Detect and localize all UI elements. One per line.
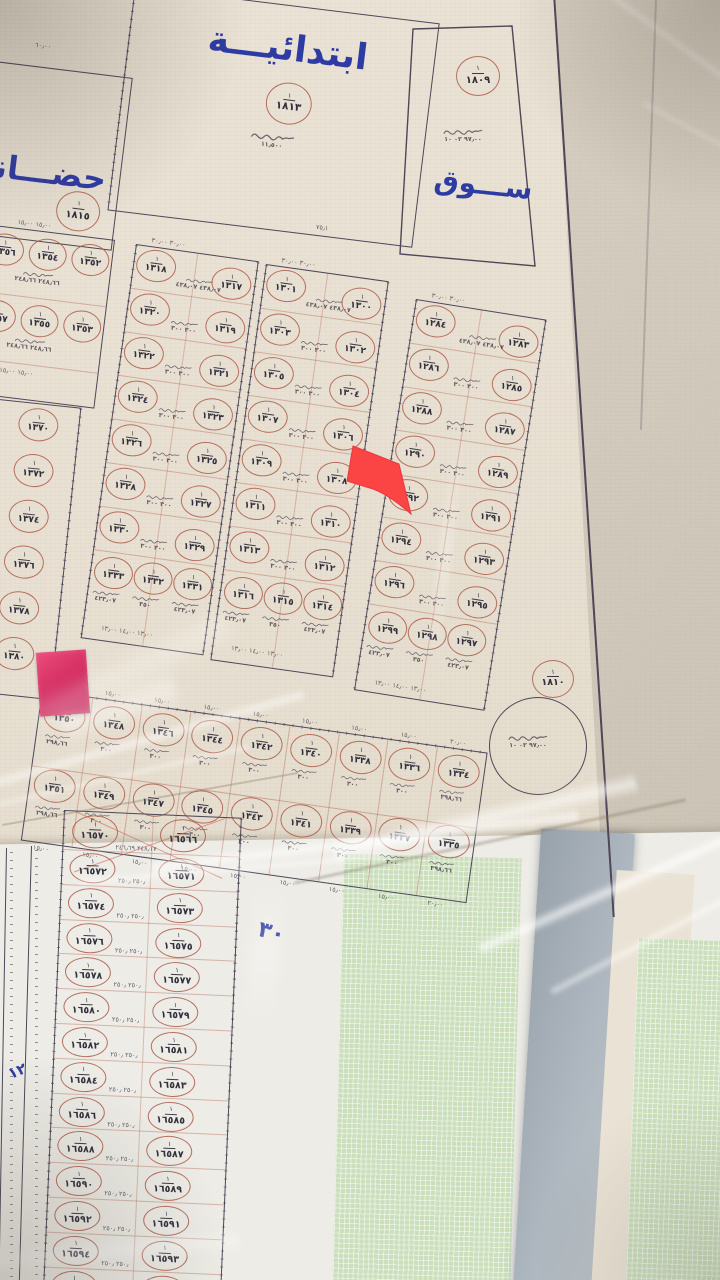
plot-number: ١٦٥٩٢ bbox=[62, 1213, 92, 1227]
plot-circle: ١١٦٥٨٠ bbox=[63, 991, 110, 1023]
area-note: ٤٢٣٫٠٧ bbox=[221, 608, 251, 626]
plot-block-lower: ١١٦٥٧٠١١٦٥٦٦٢٤٨٫١٧ ٢٤٦٫٦٩١١٦٥٧٢١١٦٥٧١٢٥٠… bbox=[43, 810, 242, 1280]
area-note: ٣٠٠ ٣٠٠ bbox=[287, 426, 317, 444]
plot-number: ١٨١٣ bbox=[275, 99, 302, 116]
plot-number: ١٢٨٤ bbox=[423, 318, 447, 333]
plot-number: ١٣٠٩ bbox=[249, 457, 272, 472]
plot-circle: ١١٢٨٥ bbox=[489, 366, 534, 404]
area-note: ٤٢٣٫٠٧ bbox=[443, 655, 473, 673]
plot-circle: ١١٣٠١ bbox=[264, 267, 308, 304]
dimension-label: ١٥٫٠٠ ١٥٫٠٠ bbox=[0, 366, 34, 378]
plot-number: ١٦٥٨٨ bbox=[65, 1144, 95, 1158]
area-note: ٢٤٨٫٦٦ ٢٤٨٫٦٦ bbox=[6, 335, 53, 354]
dimension-label: ٢٥٠٫ ٢٥٠٫ bbox=[104, 1189, 132, 1198]
plot-number: ١٢٨٩ bbox=[486, 469, 510, 484]
plot-circle: ١١٢٨٧ bbox=[483, 410, 528, 448]
area-note: ٣٠٠ bbox=[388, 780, 416, 797]
plot-circle: ١١٣١٥ bbox=[262, 580, 305, 617]
plot-number: ١٣٣٢ bbox=[141, 576, 164, 591]
plot-circle: ١١٢٩٤ bbox=[379, 520, 424, 558]
note-value: ٤٢٣٫٠٧ bbox=[303, 627, 325, 637]
note-value: ٤٢٣٫٠٧ bbox=[368, 650, 390, 660]
plot-circle: ١١٣٣٦ bbox=[387, 745, 433, 784]
area-note: ٣٠٠ ٣٠٠ bbox=[138, 536, 168, 554]
note-value: ٣٥٠ bbox=[412, 657, 424, 666]
plot-circle: ١١٣٢٣ bbox=[191, 396, 235, 433]
area-note: ٣٠٠ ٣٠٠ bbox=[451, 375, 481, 393]
plot-number: ١٦٥٧٦ bbox=[75, 935, 105, 949]
note-value: ٤٣٨٫٠٧ ٤٣٨٫٠٧ bbox=[175, 282, 221, 295]
dimension-label: ٦٠٫٠٠ bbox=[35, 41, 52, 51]
note-value: ٣٠٠ ٣٠٠ bbox=[270, 564, 296, 574]
plot-circle: ١١٦٥٩٤ bbox=[52, 1235, 99, 1267]
plot-block-A1: ١٥٫٠٠ ١٥٫٠٠١١٣٥٦١١٣٥٤١١٣٥٢٢٤٨٫٦٦ ٢٤٨٫٦٦١… bbox=[0, 224, 115, 409]
plot-number: ١٢٩٩ bbox=[375, 624, 399, 639]
area-note: ٣٠٠ ٣٠٠ bbox=[163, 362, 193, 380]
plot-number: ١٦٥٦٦ bbox=[168, 833, 198, 847]
plot-circle: ١١٣٤٤ bbox=[189, 717, 235, 756]
plot-circle: ١١٣١١ bbox=[233, 485, 277, 522]
area-note: ٣٠٠ ٣٠٠ bbox=[169, 319, 199, 337]
plot-number: ١٣٤٧ bbox=[141, 797, 164, 812]
area-note: ٣٠٠ ٣٠٠ bbox=[268, 556, 298, 574]
plot-number: ١٢٩٤ bbox=[389, 535, 413, 550]
note-value: ٤٢٣٫٠٧ bbox=[224, 616, 246, 626]
plot-number: ١٣٠٤ bbox=[337, 388, 360, 403]
area-note: ٣٠٠ bbox=[93, 739, 121, 756]
red-arrow-marker bbox=[343, 442, 417, 520]
plot-number: ١٣٣٧ bbox=[387, 832, 410, 847]
green-zone-center bbox=[332, 854, 521, 1280]
dimension-label: ١٣٫٠٠ ١٤٫٠٠ ١٣٫٠٠ bbox=[101, 624, 154, 639]
roundabout-circle: ٩٧٫٠٠ ٠٢ ١٠ bbox=[489, 697, 587, 795]
plot-number: ١٦٥٩٣ bbox=[150, 1253, 180, 1267]
plot-number: ١٦٥٧٣ bbox=[165, 905, 195, 919]
plot-circle: ١١٣٧٤ bbox=[7, 498, 50, 535]
plot-number: ١٢٨٧ bbox=[492, 425, 516, 440]
plot-number: ١٣٤٨ bbox=[102, 720, 125, 735]
note-value: ٣٠٠ ٣٠٠ bbox=[300, 346, 326, 356]
note-value: ١١٫٥٠٠ bbox=[260, 142, 282, 151]
note-value: ٣٠٠ ٣٠٠ bbox=[446, 425, 472, 436]
note-value: ٤٣٨٫٠٧ ٤٣٨٫٠٧ bbox=[458, 338, 504, 352]
plot-number: ١٢٩١ bbox=[479, 512, 503, 527]
plot-numerator: ١ bbox=[0, 305, 4, 315]
plot-circle: ١١٣٢٨ bbox=[103, 465, 147, 502]
plot-number: ١٢٨٨ bbox=[410, 405, 434, 420]
plot-circle: ١١٣٢٥ bbox=[185, 439, 229, 476]
dimension-label: ٢٥٠٫ ٢٥٠٫ bbox=[101, 1259, 129, 1268]
dimension-label: ١٣٫٠٠ ١٤٫٠٠ ١٣٫٠٠ bbox=[231, 644, 284, 659]
dimension-label: ٢٥٠٫ ٢٥٠٫ bbox=[118, 876, 146, 885]
note-value: ٣٠٠ bbox=[346, 781, 358, 789]
plot-circle: ١١٦٥٩١ bbox=[143, 1205, 190, 1237]
note-value: ٣٠٠ ٣٠٠ bbox=[288, 433, 314, 443]
plot-number: ١٣٢٣ bbox=[201, 411, 224, 426]
plot-number: ١٢٨٥ bbox=[499, 382, 523, 397]
plot-number: ١٨٠٩ bbox=[466, 74, 490, 87]
plot-circle: ١١٣٠٥ bbox=[252, 355, 296, 392]
plot-number: ١٣٥٣ bbox=[70, 324, 93, 338]
plot-number: ١٣٢١ bbox=[207, 368, 230, 383]
plot-number: ١٣٤٦ bbox=[151, 727, 174, 742]
plot-circle: ١١٣٢٩ bbox=[173, 526, 217, 563]
plot-number: ١٣٤١ bbox=[289, 818, 312, 833]
plot-number: ١٣٤٢ bbox=[249, 741, 272, 756]
plot-circle: ١١٣١٢ bbox=[303, 546, 347, 583]
plot-number: ١٦٥٨٧ bbox=[154, 1149, 184, 1163]
plot-number: ١٦٥٧٢ bbox=[78, 866, 108, 880]
area-note: ٢٩٨٫٦٦ bbox=[33, 803, 61, 820]
plot-number: ١٣٧٤ bbox=[17, 514, 40, 528]
area-note: ٤٢٣٫٠٧ bbox=[364, 643, 394, 661]
dimension-label: ٢٥٠٫ ٢٥٠٫ bbox=[107, 1120, 135, 1129]
plot-number: ١٢٩٧ bbox=[454, 637, 478, 652]
note-value: ٣٠٠ ٣٠٠ bbox=[453, 382, 479, 393]
note-value: ٣٠٠ ٣٠٠ bbox=[276, 520, 302, 530]
plot-circle: ١١٦٥٧٢ bbox=[69, 852, 116, 884]
plot-circle: ١١٦٥٧٥ bbox=[155, 927, 202, 959]
plot-number: ١٦٥٧٥ bbox=[163, 940, 193, 954]
market-block: ١ ١٨٠٩ ٩٧٫٠٠ ٠٢ ١٠ ســـوق bbox=[392, 16, 538, 272]
plot-circle: ١١٣٠٩ bbox=[240, 442, 284, 479]
plot-number: ١٣٢٩ bbox=[182, 542, 205, 557]
plot-circle: ١١٦٥٨٩ bbox=[144, 1170, 191, 1202]
plot-circle: ١١٦٥٧٦ bbox=[66, 922, 113, 954]
note-value: ٣٠٠ ٣٠٠ bbox=[152, 456, 178, 466]
plot-circle: ١١٦٥٨١ bbox=[150, 1031, 197, 1063]
plot-number: ١٦٥٧٠ bbox=[80, 829, 110, 843]
dimension-label: ٢٥٠٫ ٢٥٠٫ bbox=[112, 1015, 140, 1024]
plot-number: ١٣٤٠ bbox=[299, 747, 322, 762]
plot-circle: ١١٢٩٧ bbox=[445, 621, 489, 659]
plot-circle: ١١٣١٩ bbox=[203, 309, 247, 346]
plot-circle: ١١٣٨٠ bbox=[0, 635, 36, 672]
area-note: ٤٣٨٫٠٧ ٤٣٨٫٠٧ bbox=[458, 331, 505, 352]
dimension-label: ٢٥٠٫ ٢٥٠٫ bbox=[103, 1224, 131, 1233]
plot-number: ١٨١٥ bbox=[65, 208, 91, 224]
plot-circle: ١١٢٩١ bbox=[469, 496, 514, 534]
plot-circle: ١١٣٣٨ bbox=[337, 738, 383, 777]
area-note: ٤٢٣٫٠٧ bbox=[170, 599, 200, 617]
area-note: ٣٠٠ ٣٠٠ bbox=[424, 549, 454, 567]
note-value: ٣٠٠ ٣٠٠ bbox=[170, 326, 196, 336]
plot-number: ١٦٥٧١ bbox=[166, 871, 196, 885]
dimension-label: ٢٥٠٫ ٢٥٠٫ bbox=[115, 946, 143, 955]
note-value: ٣٠٠ ٣٠٠ bbox=[164, 369, 190, 379]
plot-circle: ١١٣٧٢ bbox=[12, 452, 55, 489]
plot-circle: ١١٢٨٩ bbox=[476, 453, 521, 491]
plot-circle: ١١٣٧٠ bbox=[17, 406, 60, 443]
plot-circle: ١١٣٠٣ bbox=[258, 311, 302, 348]
plot-number: ١٣٧٠ bbox=[26, 422, 49, 436]
plot-circle: ١١٣٢١ bbox=[197, 352, 241, 389]
plot-circle: ١١٣١٨ bbox=[134, 247, 178, 284]
plot-circle: ١١٣٤١ bbox=[278, 802, 324, 841]
dimension-label: ٢٥٠٫ ٢٥٠٫ bbox=[116, 911, 144, 920]
plot-circle: ١١٣٥٦ bbox=[0, 231, 26, 267]
plot-circle: ١١٢٩٦ bbox=[372, 563, 417, 601]
area-note: ٣٠٠ ٣٠٠ bbox=[417, 592, 447, 610]
plot-number: ١٦٥٨٥ bbox=[156, 1114, 186, 1128]
plot-number: ١٣٥٤ bbox=[36, 252, 59, 266]
plot-circle: ١١٣٤٠ bbox=[288, 731, 334, 770]
school-label: ابتدائيـــة bbox=[206, 18, 370, 78]
note-value: ٣٠٠ bbox=[297, 774, 309, 782]
plot-number: ١٣٣٤ bbox=[447, 768, 470, 783]
area-note: ٣٠٠ ٣٠٠ bbox=[438, 462, 468, 480]
block-bottom-row: ١١٢٩٩٤٢٣٫٠٧١١٢٩٨٣٥٠١١٢٩٧٤٢٣٫٠٧١٣٫٠٠ ١٤٫٠… bbox=[355, 604, 497, 713]
plot-number: ١٣٥٥ bbox=[27, 318, 50, 332]
plot-number: ١٢٨٦ bbox=[416, 362, 440, 377]
note-value: ٤٣٨٫٠٧ ٤٣٨٫٠٧ bbox=[305, 302, 351, 315]
area-note: ٣٥٠ bbox=[260, 614, 290, 632]
plot-circle: ١١٣٥٧ bbox=[0, 298, 18, 334]
facility-plot-circle: ١ ١٨١٣ bbox=[263, 80, 314, 127]
plot-number: ١٣١٦ bbox=[231, 590, 254, 605]
nursery-label: حضـــانة bbox=[0, 145, 108, 199]
plot-number: ١٢٩٣ bbox=[472, 556, 496, 571]
block-bottom-row: ١١٣٣٣٤٢٣٫٠٧١١٣٣٢٣٥٠١١٣٣١٤٢٣٫٠٧١٣٫٠٠ ١٤٫٠… bbox=[81, 550, 214, 656]
plot-number: ١٦٥٨٠ bbox=[71, 1005, 101, 1019]
area-note: ٣٥٠ bbox=[404, 649, 434, 667]
plot-circle: ١١٦٥٨٦ bbox=[58, 1096, 105, 1128]
dimension-label: ٢٥٠٫ ٢٥٠٫ bbox=[109, 1085, 137, 1094]
plot-circle: ١١٦٥٩٦ bbox=[51, 1269, 98, 1280]
plot-number: ١٣١١ bbox=[243, 501, 266, 516]
area-note: ٣٠٠ ٣٠٠ bbox=[275, 513, 305, 531]
note-value: ٣٠٠ bbox=[248, 768, 260, 776]
note-value: ٤٢٣٫٠٧ bbox=[94, 596, 116, 606]
plot-circle: ١١٣٢٤ bbox=[116, 378, 160, 415]
plot-number: ١٣٠١ bbox=[274, 283, 297, 298]
plot-number: ١٣١٧ bbox=[219, 281, 242, 296]
note-value: ٢٩٨٫٦٦ bbox=[45, 739, 67, 749]
area-note: ٣٠٠ ٣٠٠ bbox=[157, 406, 187, 424]
plot-circle: ١١٦٥٩٢ bbox=[54, 1200, 101, 1232]
note-value: ٩٧٫٠٠ ٠٢ ١٠ bbox=[444, 137, 482, 144]
note-value: ٣٠٠ bbox=[100, 747, 112, 755]
plot-circle: ١١٣٣٩ bbox=[327, 809, 373, 848]
plot-number: ١٢٩٥ bbox=[465, 599, 489, 614]
map-photo: حضـــانة ١ ١٨١٥ ٦٠٫٠٠ ابتدائيـــة ١ ١٨١٣… bbox=[0, 0, 720, 1280]
note-value: ٣٠٠ bbox=[336, 853, 348, 861]
plot-circle: ١١٣٣٤ bbox=[436, 752, 482, 791]
plot-circle: ١١٦٥٧٧ bbox=[153, 961, 200, 993]
area-note: ٣٠٠ bbox=[329, 845, 357, 862]
note-value: ٣٠٠ ٣٠٠ bbox=[425, 556, 451, 567]
note-value: ٣٠٠ ٣٠٠ bbox=[282, 476, 308, 486]
plot-circle: ١١٦٥٨٢ bbox=[61, 1026, 108, 1058]
plot-number: ١٦٥٨٤ bbox=[68, 1074, 98, 1088]
plot-circle: ١١٦٥٩٥ bbox=[140, 1274, 187, 1280]
note-value: ٣٠٠ ٣٠٠ bbox=[439, 469, 465, 480]
plot-number: ١٦٥٧٩ bbox=[160, 1010, 190, 1024]
plot-circle: ١١٢٨٦ bbox=[407, 346, 452, 384]
green-zone-right bbox=[626, 938, 720, 1280]
plot-number: ١٣١٣ bbox=[237, 544, 260, 559]
plot-number: ١٦٥٩٤ bbox=[61, 1248, 91, 1262]
plot-circle: ١١٣٣٠ bbox=[97, 509, 141, 546]
plot-number: ١٣٠٥ bbox=[262, 370, 285, 385]
plot-circle: ١١٣٣٣ bbox=[92, 555, 135, 592]
area-note: ٣٠٠ bbox=[290, 766, 318, 783]
area-note: ٣٠٠ bbox=[339, 773, 367, 790]
area-note: ٣٩٨٫٦٦ bbox=[428, 859, 456, 876]
plot-circle: ١١٣٤٢ bbox=[239, 724, 285, 763]
plot-circle: ١١٦٥٨٧ bbox=[146, 1135, 193, 1167]
plot-number: ١٣٨٠ bbox=[2, 651, 25, 665]
area-note: ٣٠٠ ٣٠٠ bbox=[145, 493, 175, 511]
plot-number: ١٣١٥ bbox=[271, 596, 294, 611]
plot-circle: ١١٣٣٥ bbox=[426, 822, 472, 861]
plot-number: ١٣٥٦ bbox=[0, 247, 16, 261]
plot-number: ١٣٢٤ bbox=[125, 394, 148, 409]
plot-number: ١٣٢٦ bbox=[119, 437, 142, 452]
plot-circle: ١١٣٥٤ bbox=[27, 237, 69, 273]
block-bottom-row: ١١٣١٦٤٢٣٫٠٧١١٣١٥٣٥٠١١٣١٤٤٢٣٫٠٧١٣٫٠٠ ١٤٫٠… bbox=[211, 570, 344, 676]
note-value: ٢٩٨٫٦٦ bbox=[35, 810, 57, 820]
market-outline bbox=[392, 16, 538, 272]
note-value: ٣٠٠ ٣٠٠ bbox=[294, 389, 320, 399]
plot-circle: ١١٦٥٨٤ bbox=[60, 1061, 107, 1093]
area-note: ٢٤٨٫٦٦ bbox=[0, 434, 1, 451]
plot-number: ١٣٥١ bbox=[42, 783, 65, 798]
plot-circle: ١١٣٥٣ bbox=[61, 308, 103, 344]
plot-number: ١٣٣٨ bbox=[348, 754, 371, 769]
plot-circle: ١١٣٣٧ bbox=[377, 815, 423, 854]
plot-number: ١٣٥٢ bbox=[78, 257, 101, 271]
plot-circle: ١١٣١٦ bbox=[222, 575, 265, 612]
plot-number: ١٣٣٥ bbox=[437, 839, 460, 854]
note-value: ٣٥٠ bbox=[268, 622, 280, 630]
plot-number: ١٦٥٩١ bbox=[151, 1218, 181, 1232]
plot-circle: ١١٦٥٩٣ bbox=[141, 1240, 188, 1272]
plot-circle: ١١٢٩٩ bbox=[366, 609, 410, 647]
area-note: ٣٠٠ ٣٠٠ bbox=[151, 449, 181, 467]
plot-circle: ١١٣٧٦ bbox=[2, 544, 45, 581]
plot-circle: ١١٦٥٨٨ bbox=[57, 1130, 104, 1162]
area-note: ٢٩٨٫٦٦ bbox=[43, 732, 71, 749]
plot-circle: ١١٣٥٢ bbox=[70, 242, 112, 278]
plot-number: ١٣٠٣ bbox=[268, 326, 291, 341]
area-note: ٤٢٣٫٠٧ bbox=[91, 588, 121, 606]
plot-number: ١٦٥٨١ bbox=[159, 1044, 189, 1058]
plot-number: ١٣١٩ bbox=[213, 324, 236, 339]
plot-circle: ١١٣٠٤ bbox=[327, 372, 371, 409]
plot-number: ١٦٥٨٩ bbox=[153, 1184, 183, 1198]
plot-number: ١٣١٨ bbox=[144, 263, 167, 278]
plot-number: ١٣١٠ bbox=[318, 518, 341, 533]
plot-circle: ١١٣١٤ bbox=[301, 586, 344, 623]
plot-circle: ١١٢٩٣ bbox=[462, 540, 507, 578]
plot-circle: ١١٦٥٦٦ bbox=[159, 818, 206, 853]
plot-number: ١٣٢٠ bbox=[138, 306, 161, 321]
plot-circle: ١١٣٢٧ bbox=[179, 483, 223, 520]
area-note: ٣٠٠ bbox=[280, 838, 308, 855]
plot-circle: ١١٢٨٨ bbox=[400, 389, 445, 427]
plot-circle: ١١٦٥٧٩ bbox=[152, 996, 199, 1028]
plot-number: ١٣٣٦ bbox=[397, 761, 420, 776]
note-value: ٤٢٣٫٠٧ bbox=[173, 607, 195, 617]
area-note: ٣٠٠ ٣٠٠ bbox=[281, 469, 311, 487]
plot-circle: ١١٦٥٨٣ bbox=[149, 1066, 196, 1098]
plot-number: ١٣٤٤ bbox=[200, 734, 223, 749]
plot-circle: ١١٣٤٩ bbox=[81, 774, 127, 813]
area-note: ٣٠٠ ٣٠٠ bbox=[299, 339, 329, 357]
plot-numerator: ١ bbox=[472, 65, 484, 74]
plot-number: ١٦٥٧٧ bbox=[162, 975, 192, 989]
dimension-label: ٧٥٫١ bbox=[316, 223, 329, 232]
handwritten-note: ٩٧٫٠٠ ٠٢ ١٠ bbox=[504, 734, 552, 750]
plot-number: ١٦٥٨٢ bbox=[70, 1040, 100, 1054]
plot-number: ١٣٢٢ bbox=[132, 350, 155, 365]
area-note: ٣٠٠ bbox=[240, 760, 268, 777]
plot-number: ١٣٥٧ bbox=[0, 313, 8, 327]
plot-circle: ١١٣٢٠ bbox=[128, 291, 172, 328]
plot-number: ١٣١٤ bbox=[310, 601, 333, 616]
plot-number: ١٣٢٨ bbox=[113, 481, 136, 496]
area-note: ٣٠٠ bbox=[378, 852, 406, 869]
area-note: ٣٥٠ bbox=[130, 594, 160, 612]
note-value: ٣٠٠ bbox=[149, 754, 161, 762]
plot-circle: ١١٣٢٢ bbox=[122, 335, 166, 372]
note-value: ٣٠٠ bbox=[385, 860, 397, 868]
plot-circle: ١١٦٥٨٥ bbox=[147, 1101, 194, 1133]
plot-circle: ١١٣٤٦ bbox=[140, 710, 186, 749]
plot-circle: ١١٣٢٦ bbox=[110, 422, 154, 459]
plot-circle: ١١٢٨٤ bbox=[413, 302, 458, 340]
plot-number: ١٣٠٧ bbox=[255, 414, 278, 429]
plot-number: ١٦٥٩٠ bbox=[64, 1179, 94, 1193]
plot-number: ١٨١٠ bbox=[541, 677, 564, 689]
area-note: ٣٠٠ ٣٠٠ bbox=[293, 382, 323, 400]
plot-circle: ١١٢٩٥ bbox=[455, 583, 500, 621]
area-note: ٢٤٨٫٦٦ ٢٤٨٫٦٦ bbox=[14, 269, 61, 288]
plot-row: ١١٣٥٦١١٣٥٤١١٣٥٢٢٤٨٫٦٦ ٢٤٨٫٦٦ bbox=[0, 225, 114, 307]
plot-numerator: ١ bbox=[547, 669, 559, 678]
handwritten-note: ١١٫٥٠٠ bbox=[245, 130, 299, 153]
plot-number: ١٢٩٨ bbox=[415, 631, 439, 646]
plot-circle: ١١٣١٣ bbox=[227, 529, 271, 566]
plot-circle: ١١٣٠٢ bbox=[333, 329, 377, 366]
plot-circle: ١١٦٥٧٤ bbox=[67, 887, 114, 919]
dimension-label: ٢٥٠٫ ٢٥٠٫ bbox=[113, 981, 141, 990]
dimension-label: ٢٥٠٫ ٢٥٠٫ bbox=[110, 1050, 138, 1059]
pink-sticker bbox=[36, 649, 90, 716]
plot-number: ١٣٧٨ bbox=[7, 605, 30, 619]
plot-number: ١٣٤٩ bbox=[92, 790, 115, 805]
note-value: ٣٥٠ bbox=[138, 602, 150, 610]
note-value: ٣٠٠ ٣٠٠ bbox=[418, 599, 444, 610]
note-value: ٣٠٠ bbox=[395, 788, 407, 796]
area-note: ٣٠٠ bbox=[142, 746, 170, 763]
plot-number: ١٣٧٢ bbox=[22, 468, 45, 482]
dimension-label: ١٣٫٠٠ ١٤٫٠٠ ١٣٫٠٠ bbox=[374, 678, 427, 694]
plot-number: ١٣٧٦ bbox=[12, 559, 35, 573]
note-value: ٣٠٠ ٣٠٠ bbox=[140, 544, 166, 554]
plot-number: ١٢٩٦ bbox=[382, 579, 406, 594]
plot-number: ١٦٥٧٤ bbox=[76, 901, 106, 915]
plot-number: ١٣٣٣ bbox=[101, 570, 124, 585]
plot-circle: ١١٣٣٢ bbox=[132, 560, 175, 597]
plot-circle: ١١٣٠٧ bbox=[246, 398, 290, 435]
plot-number: ١٣٠٠ bbox=[349, 301, 372, 316]
note-value: ٣٠٠ bbox=[287, 846, 299, 854]
note-value: ٣٠٠ ٣٠٠ bbox=[158, 413, 184, 423]
plot-number: ١٣٠٢ bbox=[343, 344, 366, 359]
plot-circle: ١١٦٥٩٠ bbox=[55, 1165, 102, 1197]
